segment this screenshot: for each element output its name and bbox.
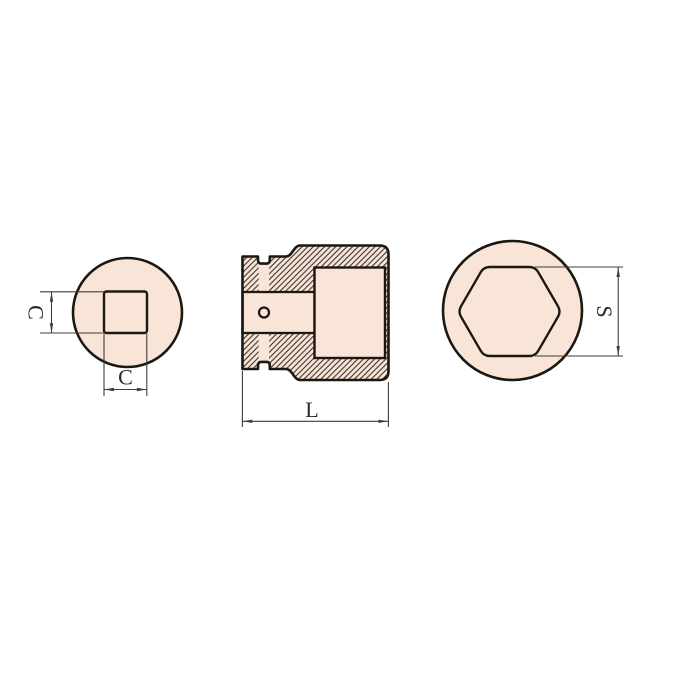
arrowhead-down-icon [617, 346, 620, 356]
square-drive-hole [104, 292, 147, 334]
square-drive-end-view: C C [23, 258, 182, 396]
dim-label-s: S [592, 305, 617, 317]
arrowhead-right-icon [379, 420, 389, 423]
square-drive-cavity [243, 292, 315, 333]
technical-drawing-canvas: C C L [0, 0, 700, 700]
hex-end-view: S [443, 241, 623, 380]
dim-label-l: L [305, 397, 318, 422]
socket-drawing: C C L [0, 0, 700, 700]
arrowhead-down-icon [50, 323, 53, 333]
arrowhead-left-icon [243, 420, 253, 423]
side-section-view: L [242, 246, 388, 428]
arrowhead-left-icon [104, 388, 114, 391]
hex-socket-cavity [315, 268, 386, 359]
arrowhead-right-icon [137, 388, 147, 391]
dim-label-c-vertical: C [23, 305, 48, 320]
arrowhead-up-icon [617, 267, 620, 277]
arrowhead-up-icon [50, 292, 53, 302]
dim-label-c-horizontal: C [118, 365, 133, 390]
pin-hole [259, 308, 269, 318]
